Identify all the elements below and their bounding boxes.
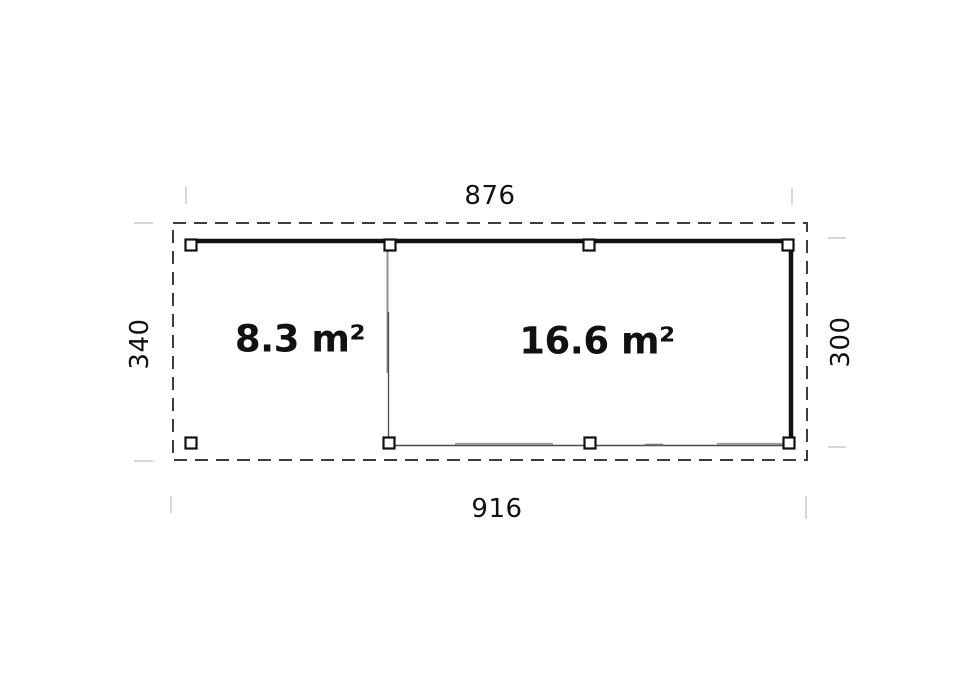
post-top-middle bbox=[584, 240, 595, 251]
dimension-right-label: 300 bbox=[828, 316, 854, 367]
post-bottom-partition bbox=[384, 438, 395, 449]
post-top-left bbox=[186, 240, 197, 251]
post-bottom-left bbox=[186, 438, 197, 449]
dimension-bottom-label: 916 bbox=[471, 496, 522, 522]
post-bottom-right bbox=[784, 438, 795, 449]
room-area-label-open-area: 8.3 m² bbox=[235, 321, 365, 358]
floor-plan-page: 876 916 340 300 8.3 m² 16.6 m² bbox=[0, 0, 980, 687]
post-bottom-middle bbox=[585, 438, 596, 449]
post-top-partition bbox=[385, 240, 396, 251]
post-top-right bbox=[783, 240, 794, 251]
dimension-top-label: 876 bbox=[464, 183, 515, 209]
room-area-label-enclosed-room: 16.6 m² bbox=[519, 323, 674, 360]
partition-line bbox=[388, 250, 389, 440]
dimension-left-label: 340 bbox=[127, 318, 153, 369]
